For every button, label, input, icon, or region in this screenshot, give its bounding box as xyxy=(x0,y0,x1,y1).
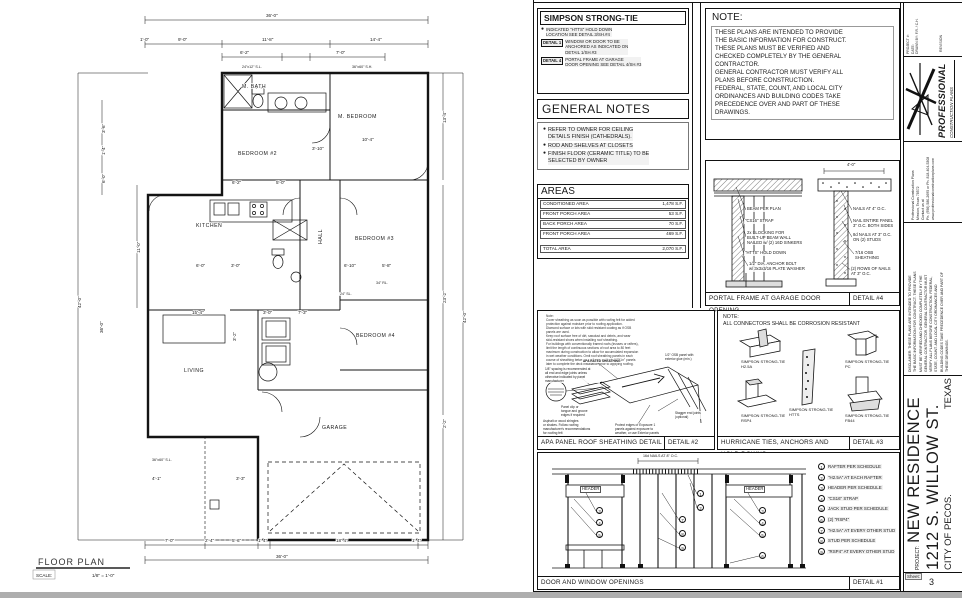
room-label-kitchen: KITCHEN xyxy=(196,223,222,229)
apa-label-spacing: 1/8" spacing is recommended at all end a… xyxy=(544,367,600,383)
general-notes-box: GENERAL NOTES ● REFER TO OWNER FOR CEILI… xyxy=(537,99,689,178)
room-label-bedroom4: BEDROOM #4 xyxy=(356,333,395,339)
simpson-item: INDICATED "HTTS" HOLD DOWN LOCATION SEE … xyxy=(546,27,612,37)
portal-label-nails4: NAILS AT 4" O.C. xyxy=(852,207,887,212)
legend-num: 7 xyxy=(818,527,825,534)
callout-5b: 5 xyxy=(759,531,766,538)
dim-label: 6'-0" xyxy=(196,263,206,268)
dim-label: 1'-4" xyxy=(258,538,268,543)
drafting-tools-logo-icon xyxy=(904,59,938,139)
legend-text: STUD PER SCHEDULE xyxy=(827,538,876,543)
legend-text: HEADER PER SCHEDULE xyxy=(827,485,883,490)
portal-label-strap: "CS16" STRAP xyxy=(744,219,775,224)
legend-text: "CS16" STRAP xyxy=(827,496,859,501)
callout-1: 1 xyxy=(697,490,704,497)
brand-subtitle: CONSTRUCTION PLANS xyxy=(949,60,955,138)
portal-label-osb: 7/16 OSB SHEATHING xyxy=(854,251,899,261)
simpson-strong-tie-box: SIMPSON STRONG-TIE ● INDICATED "HTTS" HO… xyxy=(537,8,689,94)
dim-label: 7'-0" xyxy=(165,538,175,543)
note-box-title: NOTE: xyxy=(706,9,899,24)
dim-label: 4'-1" xyxy=(152,476,162,481)
dim-label: 3'-3" xyxy=(236,476,246,481)
project-address: 1212 S. WILLOW ST. xyxy=(924,378,943,570)
column-divider xyxy=(692,2,693,308)
area-row-label: CONDITIONED AREA xyxy=(543,201,589,208)
dim-label: 15'-4" xyxy=(192,310,204,315)
room-label-living: LIVING xyxy=(184,368,204,374)
connector-label-rsp4: SIMPSON STRONG-TIE RSP4 xyxy=(740,413,786,423)
callout-3b: 3 xyxy=(759,507,766,514)
dim-label: 1'-0" xyxy=(140,37,150,42)
dim-label: 13'-4" xyxy=(442,111,447,123)
dim-label: 5'-6" xyxy=(232,538,242,543)
apa-roof-sheathing-panel: Note: Cover sheathing as soon as possibl… xyxy=(537,310,715,450)
openings-panel-detail-number: DETAIL #1 xyxy=(850,577,899,589)
sheet-edge-shadow xyxy=(0,592,962,598)
connector-label-htts: SIMPSON STRONG-TIE HTTS xyxy=(788,407,834,417)
legend-num: 3 xyxy=(818,484,825,491)
dim-label: 36'-0" xyxy=(99,321,104,333)
dim-label: 6'-0" xyxy=(101,173,106,183)
portal-label-holddown: "HTTS" HOLD DOWN xyxy=(744,251,787,256)
room-label-mbedroom: M. BEDROOM xyxy=(338,114,377,120)
room-label-bedroom3: BEDROOM #3 xyxy=(355,236,394,242)
note-box-body: THESE PLANS ARE INTENDED TO PROVIDE THE … xyxy=(711,26,894,120)
callout-2: 2 xyxy=(697,504,704,511)
callout-3: 3 xyxy=(596,507,603,514)
framing-top-note: 16d NAILS AT 8" O.C. xyxy=(642,454,679,458)
hurricane-ties-panel: NOTE: ALL CONNECTORS SHALL BE CORROSION … xyxy=(717,310,900,450)
area-row-label: FRONT PORCH AREA xyxy=(543,211,590,218)
sheet-divider xyxy=(533,0,534,592)
area-row-value: 53 S.F. xyxy=(669,211,683,218)
apa-panel-title: APA PANEL ROOF SHEATHING DETAIL xyxy=(538,437,665,449)
window-label: 36"x60" S.H. xyxy=(352,65,372,69)
disclaimer-text: DISCLAIMER: THESE PLANS ARE INTENDED TO … xyxy=(908,226,950,372)
project-name: NEW RESIDENCE xyxy=(905,397,924,543)
legend-num: 5 xyxy=(818,505,825,512)
bullet-icon: ● xyxy=(541,27,544,37)
dim-label: 1'-4" xyxy=(412,538,422,543)
portal-label-rows-nails: (2) ROWS OF NAILS AT 3" O.C. xyxy=(850,267,892,277)
apa-label-rated-sheathing: APA RATED SHEATHING xyxy=(582,359,621,363)
connector-label-h25a: SIMPSON STRONG-TIE H2.5A xyxy=(740,359,786,369)
general-note-item: ROD AND SHELVES AT CLOSETS xyxy=(548,143,633,150)
legend-text: RAFTER PER SCHEDULE xyxy=(827,464,882,469)
callout-9: 9 xyxy=(679,544,686,551)
simpson-box-title: SIMPSON STRONG-TIE xyxy=(540,11,686,25)
dim-label: 2'-4" xyxy=(205,538,215,543)
apa-label-shingles: Asphalt or wood shingles or shakes. Foll… xyxy=(542,419,591,435)
project-state: TEXAS xyxy=(943,378,954,409)
dim-label: 9'-0" xyxy=(178,37,188,42)
portal-dim-label: 4'-0" xyxy=(846,163,856,168)
dim-label: 3'-6" xyxy=(101,123,106,133)
brand-name: PROFESSIONAL xyxy=(937,60,947,138)
legend-num: 9 xyxy=(818,548,825,555)
portal-label-anchor: 1/2" DIA. ANCHOR BOLT w/ 3x3x3/16 PLATE … xyxy=(748,262,806,272)
area-row-value: 1,478 S.F. xyxy=(662,201,683,208)
dim-label: 3'-2" xyxy=(232,331,237,341)
scale-value: 1/8" = 1'-0" xyxy=(92,573,115,578)
header-label: HEADER xyxy=(744,486,765,493)
apa-panel-detail-number: DETAIL #2 xyxy=(665,437,714,449)
brand-logo-block: PROFESSIONAL CONSTRUCTION PLANS xyxy=(903,57,962,142)
bullet-icon: ● xyxy=(543,127,546,141)
openings-legend: 1RAFTER PER SCHEDULE 2"H2.5A" AT EACH RA… xyxy=(818,463,896,558)
apa-label-osb: 1/2" OSB panel with exterior glue (min.) xyxy=(664,353,694,361)
callout-4: 4 xyxy=(596,519,603,526)
legend-text: "RSP4" AT EVERY OTHER STUD xyxy=(827,549,895,554)
portal-panel-detail-number: DETAIL #4 xyxy=(850,293,899,305)
project-name-block: PROJECT: NEW RESIDENCE 1212 S. WILLOW ST… xyxy=(903,376,962,573)
openings-panel-title: DOOR AND WINDOW OPENINGS xyxy=(538,577,850,589)
general-notes-title: GENERAL NOTES xyxy=(537,99,689,119)
callout-6: 6 xyxy=(759,552,766,559)
area-row-value: 469 S.F. xyxy=(666,231,683,238)
dim-label: 42'-0" xyxy=(77,296,82,308)
bullet-icon: ● xyxy=(543,143,546,150)
sheet-border-top xyxy=(533,2,962,3)
hurricane-panel-titlebar: HURRICANE TIES, ANCHORS AND HOLD DOWNS D… xyxy=(718,436,899,449)
dim-label: 5'-8" xyxy=(382,263,392,268)
portal-label-beam: BEAM PER PLAN xyxy=(746,207,782,212)
callout-5: 5 xyxy=(596,531,603,538)
legend-num: 4 xyxy=(818,495,825,502)
titleblock-revision-label: REVISION xyxy=(939,8,943,52)
legend-num: 1 xyxy=(818,463,825,470)
project-label: PROJECT: xyxy=(915,546,921,570)
detail-4-tag: DETAIL 4 xyxy=(541,57,563,65)
dim-label: 42'-0" xyxy=(462,311,467,323)
hurricane-panel-title: HURRICANE TIES, ANCHORS AND HOLD DOWNS xyxy=(718,437,850,449)
portal-label-nail-entire: NAIL ENTIRE PANEL 3" O.C. BOTH SIDES xyxy=(852,219,894,229)
area-row-value: 70 S.F. xyxy=(669,221,683,228)
portal-label-blocking: 2x BLOCKING FOR BUILT-UP BEAM WALL NAILE… xyxy=(746,231,803,245)
titleblock-meta: PROJECT #: DATE: DRAWN BY: F.R. / C.H. xyxy=(906,4,920,54)
dim-label: 36'-0" xyxy=(276,554,288,559)
apa-panel-titlebar: APA PANEL ROOF SHEATHING DETAIL DETAIL #… xyxy=(538,436,714,449)
floor-plan-title: FLOOR PLAN xyxy=(38,557,105,567)
window-label: 34" RL. xyxy=(376,281,388,285)
dim-label: 23'-2" xyxy=(442,291,447,303)
callout-8: 8 xyxy=(679,530,686,537)
dim-label: 14'-4" xyxy=(370,37,382,42)
dim-label: 2'-2" xyxy=(442,418,447,428)
sheet-label: Sheet: xyxy=(905,573,922,580)
simpson-item: WINDOW OR DOOR TO BE ANCHORED AS INDICAT… xyxy=(565,39,628,54)
window-label: 24"x12" S.L. xyxy=(242,65,262,69)
dim-label: 6'-2" xyxy=(232,180,242,185)
titleblock-border xyxy=(900,2,901,592)
titleblock-strip: PROJECT #: DATE: DRAWN BY: F.R. / C.H. R… xyxy=(903,2,962,592)
legend-text: "H2.5A" AT EVERY OTHER STUD xyxy=(827,528,896,533)
areas-title: AREAS xyxy=(538,185,688,199)
scale-label: SCALE: xyxy=(36,573,52,578)
legend-num: 2 xyxy=(818,474,825,481)
legend-num: 8 xyxy=(818,537,825,544)
header-label: HEADER xyxy=(580,486,601,493)
connector-label-fb44: SIMPSON STRONG-TIE FB44 xyxy=(844,413,890,423)
areas-total-label: TOTAL AREA xyxy=(543,246,571,253)
area-row-label: FRONT PORCH AREA xyxy=(543,231,590,238)
legend-text: "H2.5A" AT EACH RAFTER xyxy=(827,475,883,480)
portal-frame-panel: 4'-0" BEAM PER PLAN "CS16" STRAP 2x BLOC… xyxy=(705,160,900,306)
detail-1-tag: DETAIL 1 xyxy=(541,39,563,47)
callout-7: 7 xyxy=(679,516,686,523)
bullet-icon: ● xyxy=(543,151,546,165)
note-box: NOTE: THESE PLANS ARE INTENDED TO PROVID… xyxy=(705,8,900,140)
company-contact-info: Professional Construction Plans Mission,… xyxy=(911,144,936,220)
drawing-sheet: M. BATH M. BEDROOM BEDROOM #2 KITCHEN HA… xyxy=(0,0,962,598)
door-window-openings-panel: 16d NAILS AT 8" O.C. HEADER HEADER 1 2 3… xyxy=(537,452,900,590)
dim-label: 3'-10" xyxy=(312,146,324,151)
dim-label: 11'-0" xyxy=(136,241,141,253)
column-divider xyxy=(700,2,701,308)
dim-label: 7'-3" xyxy=(298,310,308,315)
areas-box: AREAS CONDITIONED AREA1,478 S.F. FRONT P… xyxy=(537,184,689,259)
dim-label: 7'-0" xyxy=(336,50,346,55)
area-row-label: BACK PORCH AREA xyxy=(543,221,587,228)
portal-label-nails8d: 8d NAILS AT 3" O.C. ON (2) STUDS xyxy=(852,233,893,243)
dim-label: 6'-2" xyxy=(240,50,250,55)
dim-label: 3'-0" xyxy=(263,310,273,315)
floor-plan-drawing: M. BATH M. BEDROOM BEDROOM #2 KITCHEN HA… xyxy=(0,0,535,598)
window-label: 24" SL. xyxy=(340,292,352,296)
dim-label: 6'-10" xyxy=(344,263,356,268)
room-label-bedroom2: BEDROOM #2 xyxy=(238,151,277,157)
portal-panel-title: PORTAL FRAME AT GARAGE DOOR OPENING xyxy=(706,293,850,305)
connector-label-pc: SIMPSON STRONG-TIE PC xyxy=(844,359,890,369)
simpson-item: PORTAL FRAME AT GARAGE DOOR OPENING SEE … xyxy=(565,57,641,67)
dim-label: 18'-4" xyxy=(336,538,348,543)
areas-total-value: 2,070 S.F. xyxy=(662,246,683,253)
dim-label: 5'-0" xyxy=(276,180,286,185)
legend-text: JACK STUD PER SCHEDULE xyxy=(827,506,889,511)
dim-label: 10'-4" xyxy=(362,137,374,142)
room-label-mbath: M. BATH xyxy=(242,84,266,90)
apa-label-protect: Protect edges of Exposure 1 panels again… xyxy=(614,423,660,435)
apa-label-clip: Panel clip or tongue and groove edges if… xyxy=(560,405,589,417)
openings-panel-titlebar: DOOR AND WINDOW OPENINGS DETAIL #1 xyxy=(538,576,899,589)
room-label-garage: GARAGE xyxy=(322,425,347,431)
dim-label: 1'-4" xyxy=(101,145,106,155)
project-city: CITY OF PECOS. xyxy=(943,494,954,570)
general-note-item: REFER TO OWNER FOR CEILING DETAILS FINIS… xyxy=(548,127,633,141)
apa-label-stagger: Stagger end joints (optional) xyxy=(674,411,702,419)
dim-label: 36'-0" xyxy=(266,13,278,18)
portal-panel-titlebar: PORTAL FRAME AT GARAGE DOOR OPENING DETA… xyxy=(706,292,899,305)
general-note-item: FINISH FLOOR (CERAMIC TITLE) TO BE SELEC… xyxy=(548,151,649,165)
sheet-number-block: Sheet: 3 xyxy=(903,573,962,592)
hurricane-panel-detail-number: DETAIL #3 xyxy=(850,437,899,449)
callout-4b: 4 xyxy=(759,519,766,526)
dim-label: 11'-8" xyxy=(262,37,274,42)
window-label: 36"x60" S.L. xyxy=(152,458,172,462)
legend-text: (2) "RSP4" xyxy=(827,517,850,522)
sheet-number: 3 xyxy=(929,577,934,587)
room-label-hall: HALL xyxy=(318,229,324,244)
legend-num: 6 xyxy=(818,516,825,523)
dim-label: 3'-0" xyxy=(231,263,241,268)
